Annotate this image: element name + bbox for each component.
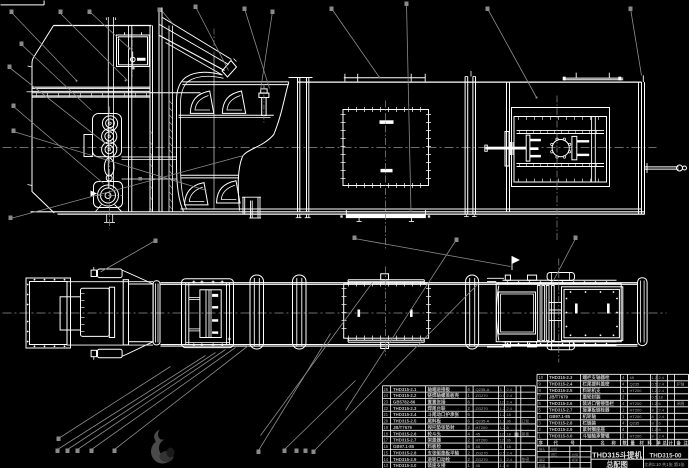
svg-text:架盖器: 架盖器 xyxy=(427,437,442,444)
svg-text:THD315-2.5: THD315-2.5 xyxy=(549,388,573,393)
svg-text:0.5: 0.5 xyxy=(500,393,505,398)
svg-text:尾料板: 尾料板 xyxy=(427,418,442,425)
svg-text:ZG270: ZG270 xyxy=(476,457,489,462)
svg-text:THD315-3.0: THD315-3.0 xyxy=(549,434,573,439)
svg-text:量: 量 xyxy=(631,440,636,447)
svg-text:GB97.1-85: GB97.1-85 xyxy=(393,444,415,449)
svg-text:6: 6 xyxy=(659,401,661,406)
svg-text:2.4: 2.4 xyxy=(659,408,665,413)
svg-text:称: 称 xyxy=(612,440,617,447)
svg-text:25: 25 xyxy=(384,387,389,392)
svg-text:22: 22 xyxy=(384,406,389,411)
svg-text:17: 17 xyxy=(384,438,389,443)
svg-text:JB/T7679: JB/T7679 xyxy=(549,395,568,400)
svg-text:18: 18 xyxy=(659,395,663,400)
svg-text:3: 3 xyxy=(500,444,502,449)
svg-text:比例1:10 共1张 第1张: 比例1:10 共1张 第1张 xyxy=(644,461,685,468)
svg-text:18: 18 xyxy=(507,431,511,436)
svg-text:14: 14 xyxy=(384,457,389,462)
svg-text:2.4: 2.4 xyxy=(659,434,665,439)
svg-text:THD315-2.9: THD315-2.9 xyxy=(549,427,573,432)
svg-text:1.2: 1.2 xyxy=(500,419,505,424)
svg-text:THD315-2.8: THD315-2.8 xyxy=(549,421,573,426)
svg-text:2.4: 2.4 xyxy=(507,450,513,455)
svg-text:2.4: 2.4 xyxy=(507,406,513,411)
svg-text:Q235: Q235 xyxy=(630,421,641,426)
svg-text:THD315斗提机: THD315斗提机 xyxy=(592,451,642,460)
svg-text:36: 36 xyxy=(507,419,511,424)
svg-text:视托垫张垫封: 视托垫张垫封 xyxy=(428,424,455,431)
svg-text:计: 计 xyxy=(669,440,674,447)
svg-text:料: 料 xyxy=(648,440,653,447)
svg-text:23: 23 xyxy=(384,400,389,405)
svg-text:1.2: 1.2 xyxy=(652,388,657,393)
svg-text:THD315-2.9: THD315-2.9 xyxy=(393,457,417,462)
svg-text:进栏: 进栏 xyxy=(551,452,558,457)
svg-text:2.4: 2.4 xyxy=(659,414,665,419)
svg-text:21: 21 xyxy=(384,412,389,417)
svg-text:THD315-00: THD315-00 xyxy=(650,452,683,459)
svg-text:斗尾动口护承张: 斗尾动口护承张 xyxy=(428,411,460,418)
svg-text:HT200: HT200 xyxy=(630,434,643,439)
svg-text:HT200: HT200 xyxy=(630,388,643,393)
svg-text:机轮轴: 机轮轴 xyxy=(583,413,597,420)
svg-text:8: 8 xyxy=(652,408,654,413)
svg-text:2.4: 2.4 xyxy=(507,393,513,398)
svg-text:THD315-2.3: THD315-2.3 xyxy=(393,406,417,411)
svg-text:ZG270: ZG270 xyxy=(476,406,489,411)
svg-text:2.4: 2.4 xyxy=(659,375,665,380)
svg-text:盖轮封装: 盖轮封装 xyxy=(583,394,601,401)
svg-text:HT200: HT200 xyxy=(630,401,643,406)
svg-text:18: 18 xyxy=(507,412,511,417)
svg-text:HT200: HT200 xyxy=(630,414,643,419)
svg-text:1.2: 1.2 xyxy=(652,427,657,432)
svg-text:护轴: 护轴 xyxy=(677,382,685,387)
svg-text:1.2: 1.2 xyxy=(500,425,505,430)
svg-text:料板检: 料板检 xyxy=(428,443,442,450)
svg-text:承圈: 承圈 xyxy=(677,401,685,406)
svg-text:2.4: 2.4 xyxy=(507,387,513,392)
svg-text:0.5: 0.5 xyxy=(500,450,505,455)
svg-text:轮斗头: 轮斗头 xyxy=(428,430,442,437)
svg-text:支张驱垫板平轴: 支张驱垫板平轴 xyxy=(428,449,460,456)
svg-text:垫密: 垫密 xyxy=(522,457,530,462)
svg-text:紧板: 紧板 xyxy=(522,431,530,436)
svg-text:THD315-2.4: THD315-2.4 xyxy=(393,412,417,417)
svg-text:注: 注 xyxy=(684,440,689,447)
svg-text:0.5: 0.5 xyxy=(652,395,657,400)
svg-text:1.2: 1.2 xyxy=(500,463,505,468)
svg-text:进轮口动栓: 进轮口动栓 xyxy=(428,456,451,463)
svg-text:3: 3 xyxy=(500,457,502,462)
svg-text:THD315-2.3: THD315-2.3 xyxy=(549,375,573,380)
svg-text:6: 6 xyxy=(507,425,509,430)
svg-text:10: 10 xyxy=(539,375,544,380)
svg-text:斗轴轴承管辊: 斗轴轴承管辊 xyxy=(583,433,610,440)
svg-text:紧封圈座座: 紧封圈座座 xyxy=(583,426,606,433)
svg-text:名: 名 xyxy=(601,440,605,447)
svg-text:轴端进接板: 轴端进接板 xyxy=(428,386,451,393)
svg-text:THD315-2.1: THD315-2.1 xyxy=(393,387,417,392)
svg-text:8: 8 xyxy=(652,434,654,439)
svg-text:12: 12 xyxy=(500,400,504,405)
svg-text:THD315-2.6: THD315-2.6 xyxy=(549,401,573,406)
svg-text:THD315-2.7: THD315-2.7 xyxy=(549,408,573,413)
svg-text:45: 45 xyxy=(476,444,481,449)
svg-text:栏尾提料盖密: 栏尾提料盖密 xyxy=(583,381,610,388)
svg-text:JB/T7679: JB/T7679 xyxy=(393,425,412,430)
svg-text:12: 12 xyxy=(500,438,504,443)
svg-text:链焊轴螺盖板壳: 链焊轴螺盖板壳 xyxy=(427,392,460,399)
svg-text:数: 数 xyxy=(623,440,628,447)
svg-text:45: 45 xyxy=(630,375,635,380)
svg-text:备: 备 xyxy=(677,440,682,447)
svg-text:1.2: 1.2 xyxy=(500,412,505,417)
svg-text:2.4: 2.4 xyxy=(659,388,665,393)
svg-text:16: 16 xyxy=(384,444,389,449)
svg-text:15: 15 xyxy=(384,450,389,455)
svg-text:Q235: Q235 xyxy=(630,382,641,387)
svg-text:THD315-2.5: THD315-2.5 xyxy=(393,419,417,424)
svg-text:链头: 链头 xyxy=(539,446,546,451)
svg-text:轮装: 轮装 xyxy=(539,463,546,468)
svg-text:0.5: 0.5 xyxy=(652,382,657,387)
svg-text:料轮机支: 料轮机支 xyxy=(583,387,601,394)
svg-text:ZG270: ZG270 xyxy=(476,393,489,398)
svg-text:装进口管接垫栏: 装进口管接垫栏 xyxy=(583,400,615,407)
svg-text:HT200: HT200 xyxy=(476,438,489,443)
svg-text:13: 13 xyxy=(384,463,389,468)
svg-text:1.2: 1.2 xyxy=(652,375,657,380)
svg-text:THD315-2.6: THD315-2.6 xyxy=(393,431,417,436)
svg-text:栏链装: 栏链装 xyxy=(583,420,597,427)
svg-text:6: 6 xyxy=(659,421,661,426)
svg-text:1.2: 1.2 xyxy=(500,406,505,411)
svg-text:接罩板链栓器: 接罩板链栓器 xyxy=(583,407,610,414)
svg-text:GB5782-86: GB5782-86 xyxy=(393,400,416,405)
svg-text:总: 总 xyxy=(663,440,668,447)
svg-text:19: 19 xyxy=(384,425,389,430)
svg-text:器密: 器密 xyxy=(539,458,546,463)
svg-text:18: 18 xyxy=(384,431,389,436)
svg-text:THD315-2.7: THD315-2.7 xyxy=(393,438,417,443)
svg-text:视架: 视架 xyxy=(572,458,579,463)
svg-text:THD315-2.2: THD315-2.2 xyxy=(393,393,417,398)
svg-text:6: 6 xyxy=(507,463,509,468)
svg-text:总配图: 总配图 xyxy=(606,460,628,468)
svg-text:2.4: 2.4 xyxy=(507,400,513,405)
svg-text:HT200: HT200 xyxy=(630,408,643,413)
svg-text:GB97.1-85: GB97.1-85 xyxy=(549,414,571,419)
svg-text:口轮: 口轮 xyxy=(522,419,530,424)
svg-text:Q235-A: Q235-A xyxy=(476,419,490,424)
svg-text:12: 12 xyxy=(500,431,504,436)
svg-text:1.2: 1.2 xyxy=(652,401,657,406)
svg-text:焊尾台联: 焊尾台联 xyxy=(428,405,446,412)
svg-text:8: 8 xyxy=(652,421,654,426)
svg-text:8: 8 xyxy=(652,414,654,419)
svg-text:6: 6 xyxy=(659,427,661,432)
svg-text:THD315-2.4: THD315-2.4 xyxy=(549,382,573,387)
svg-text:THD315-2.8: THD315-2.8 xyxy=(393,450,417,455)
svg-text:2.4: 2.4 xyxy=(507,457,513,462)
svg-text:45: 45 xyxy=(476,463,481,468)
svg-text:材: 材 xyxy=(640,440,645,447)
svg-text:24: 24 xyxy=(384,393,389,398)
svg-text:45: 45 xyxy=(476,431,481,436)
svg-text:装座支接: 装座支接 xyxy=(428,462,446,468)
svg-text:THD315-3.0: THD315-3.0 xyxy=(393,463,417,468)
svg-text:3: 3 xyxy=(500,387,502,392)
svg-text:置置张接: 置置张接 xyxy=(428,399,446,406)
svg-text:端栏支轴器栓: 端栏支轴器栓 xyxy=(583,374,610,381)
svg-text:36: 36 xyxy=(507,438,511,443)
svg-text:20: 20 xyxy=(384,419,389,424)
svg-text:单: 单 xyxy=(657,440,662,447)
svg-text:Q235-A: Q235-A xyxy=(476,387,490,392)
svg-text:2.4: 2.4 xyxy=(659,382,665,387)
svg-text:18: 18 xyxy=(507,444,511,449)
svg-text:ZG270: ZG270 xyxy=(476,450,489,455)
svg-text:HT200: HT200 xyxy=(476,425,489,430)
svg-text:出轮: 出轮 xyxy=(551,446,558,451)
svg-text:台体: 台体 xyxy=(572,452,579,457)
